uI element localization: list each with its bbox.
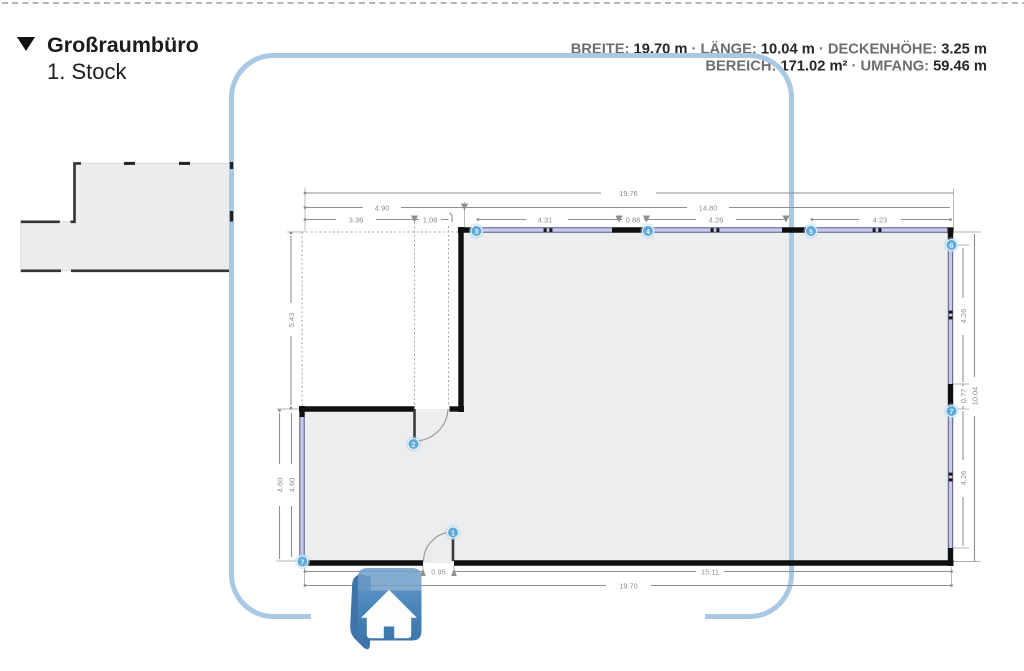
svg-text:0.95: 0.95 (431, 567, 445, 576)
svg-text:4.23: 4.23 (873, 215, 887, 224)
svg-text:Großraumbüro: Großraumbüro (47, 33, 199, 57)
svg-text:4.90: 4.90 (375, 203, 389, 212)
svg-text:3.36: 3.36 (349, 215, 363, 224)
svg-text:4.26: 4.26 (959, 309, 968, 323)
svg-text:3: 3 (474, 227, 478, 236)
svg-text:14.80: 14.80 (699, 203, 718, 212)
svg-text:4.60: 4.60 (275, 478, 284, 492)
svg-text:10.04: 10.04 (970, 387, 979, 406)
svg-text:BEREICH: 171.02 m² · UMFANG: 5: BEREICH: 171.02 m² · UMFANG: 59.46 m (705, 59, 987, 75)
svg-text:7: 7 (949, 407, 953, 416)
svg-text:6: 6 (949, 241, 953, 250)
svg-text:2: 2 (411, 440, 415, 449)
svg-text:0.88: 0.88 (626, 215, 640, 224)
svg-text:1.08: 1.08 (423, 215, 437, 224)
svg-text:4.26: 4.26 (959, 471, 968, 485)
svg-text:4.31: 4.31 (538, 215, 552, 224)
svg-text:15.11: 15.11 (701, 567, 719, 576)
svg-text:5.43: 5.43 (287, 313, 296, 327)
svg-text:1: 1 (451, 528, 455, 537)
svg-text:19.76: 19.76 (619, 189, 638, 198)
svg-text:7: 7 (300, 557, 304, 566)
svg-text:4.60: 4.60 (287, 478, 296, 492)
svg-text:5: 5 (809, 227, 813, 236)
svg-text:4.26: 4.26 (709, 215, 723, 224)
svg-text:1. Stock: 1. Stock (47, 59, 127, 84)
svg-text:19.70: 19.70 (619, 581, 638, 590)
svg-text:0.77: 0.77 (959, 389, 968, 403)
